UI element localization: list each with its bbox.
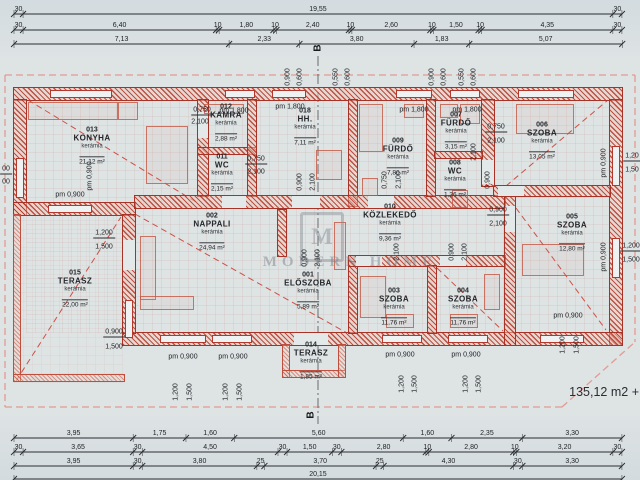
dimension-lines bbox=[0, 0, 640, 480]
floor-plan-sheet: M MODERN HOME B B 135,12 m2 + 013KONYHAk… bbox=[0, 0, 640, 480]
